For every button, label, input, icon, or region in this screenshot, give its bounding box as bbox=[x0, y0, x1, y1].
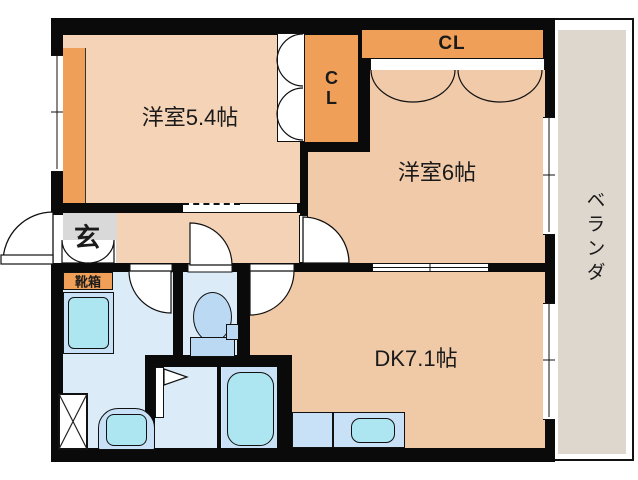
label-shoe-cabinet: 靴箱 bbox=[75, 272, 101, 291]
sliding-door-room54 bbox=[183, 203, 240, 213]
window-west bbox=[51, 55, 63, 172]
closet-middle-doors bbox=[277, 33, 305, 142]
bathroom-door-strip bbox=[155, 367, 164, 418]
kitchen-sink bbox=[351, 418, 395, 443]
floorplan: 洋室5.4帖 洋室6帖 DK7.1帖 CL CL 玄 靴箱 ベランダ bbox=[0, 0, 638, 480]
window-east-room6 bbox=[543, 117, 555, 235]
transom-panel bbox=[240, 203, 297, 213]
room-western-large-upper bbox=[370, 70, 545, 152]
window-ledge-strip bbox=[63, 48, 86, 203]
toilet-flush-handle bbox=[226, 324, 239, 340]
kitchen-counter-divider bbox=[332, 412, 334, 448]
label-western-room-large: 洋室6帖 bbox=[398, 155, 476, 187]
label-veranda: ベランダ bbox=[581, 190, 608, 286]
wash-basin-bowl bbox=[106, 414, 147, 446]
washing-machine-space bbox=[58, 393, 88, 450]
label-entrance: 玄 bbox=[74, 218, 100, 255]
laundry-pan-inner bbox=[68, 297, 109, 349]
toilet-tank bbox=[190, 337, 235, 357]
label-closet-top: CL bbox=[438, 33, 465, 55]
wall-bath-east bbox=[277, 355, 292, 452]
wall-bath-divider bbox=[217, 367, 221, 448]
door-leaf-room6 bbox=[299, 215, 308, 263]
label-western-room-small: 洋室5.4帖 bbox=[142, 100, 239, 132]
entrance-opening bbox=[51, 215, 63, 263]
label-closet-middle: CL bbox=[321, 68, 342, 108]
bathtub bbox=[227, 372, 274, 446]
label-dining-kitchen: DK7.1帖 bbox=[374, 341, 457, 373]
sliding-door-dk-room6 bbox=[372, 263, 489, 272]
window-east-dk bbox=[543, 303, 555, 420]
